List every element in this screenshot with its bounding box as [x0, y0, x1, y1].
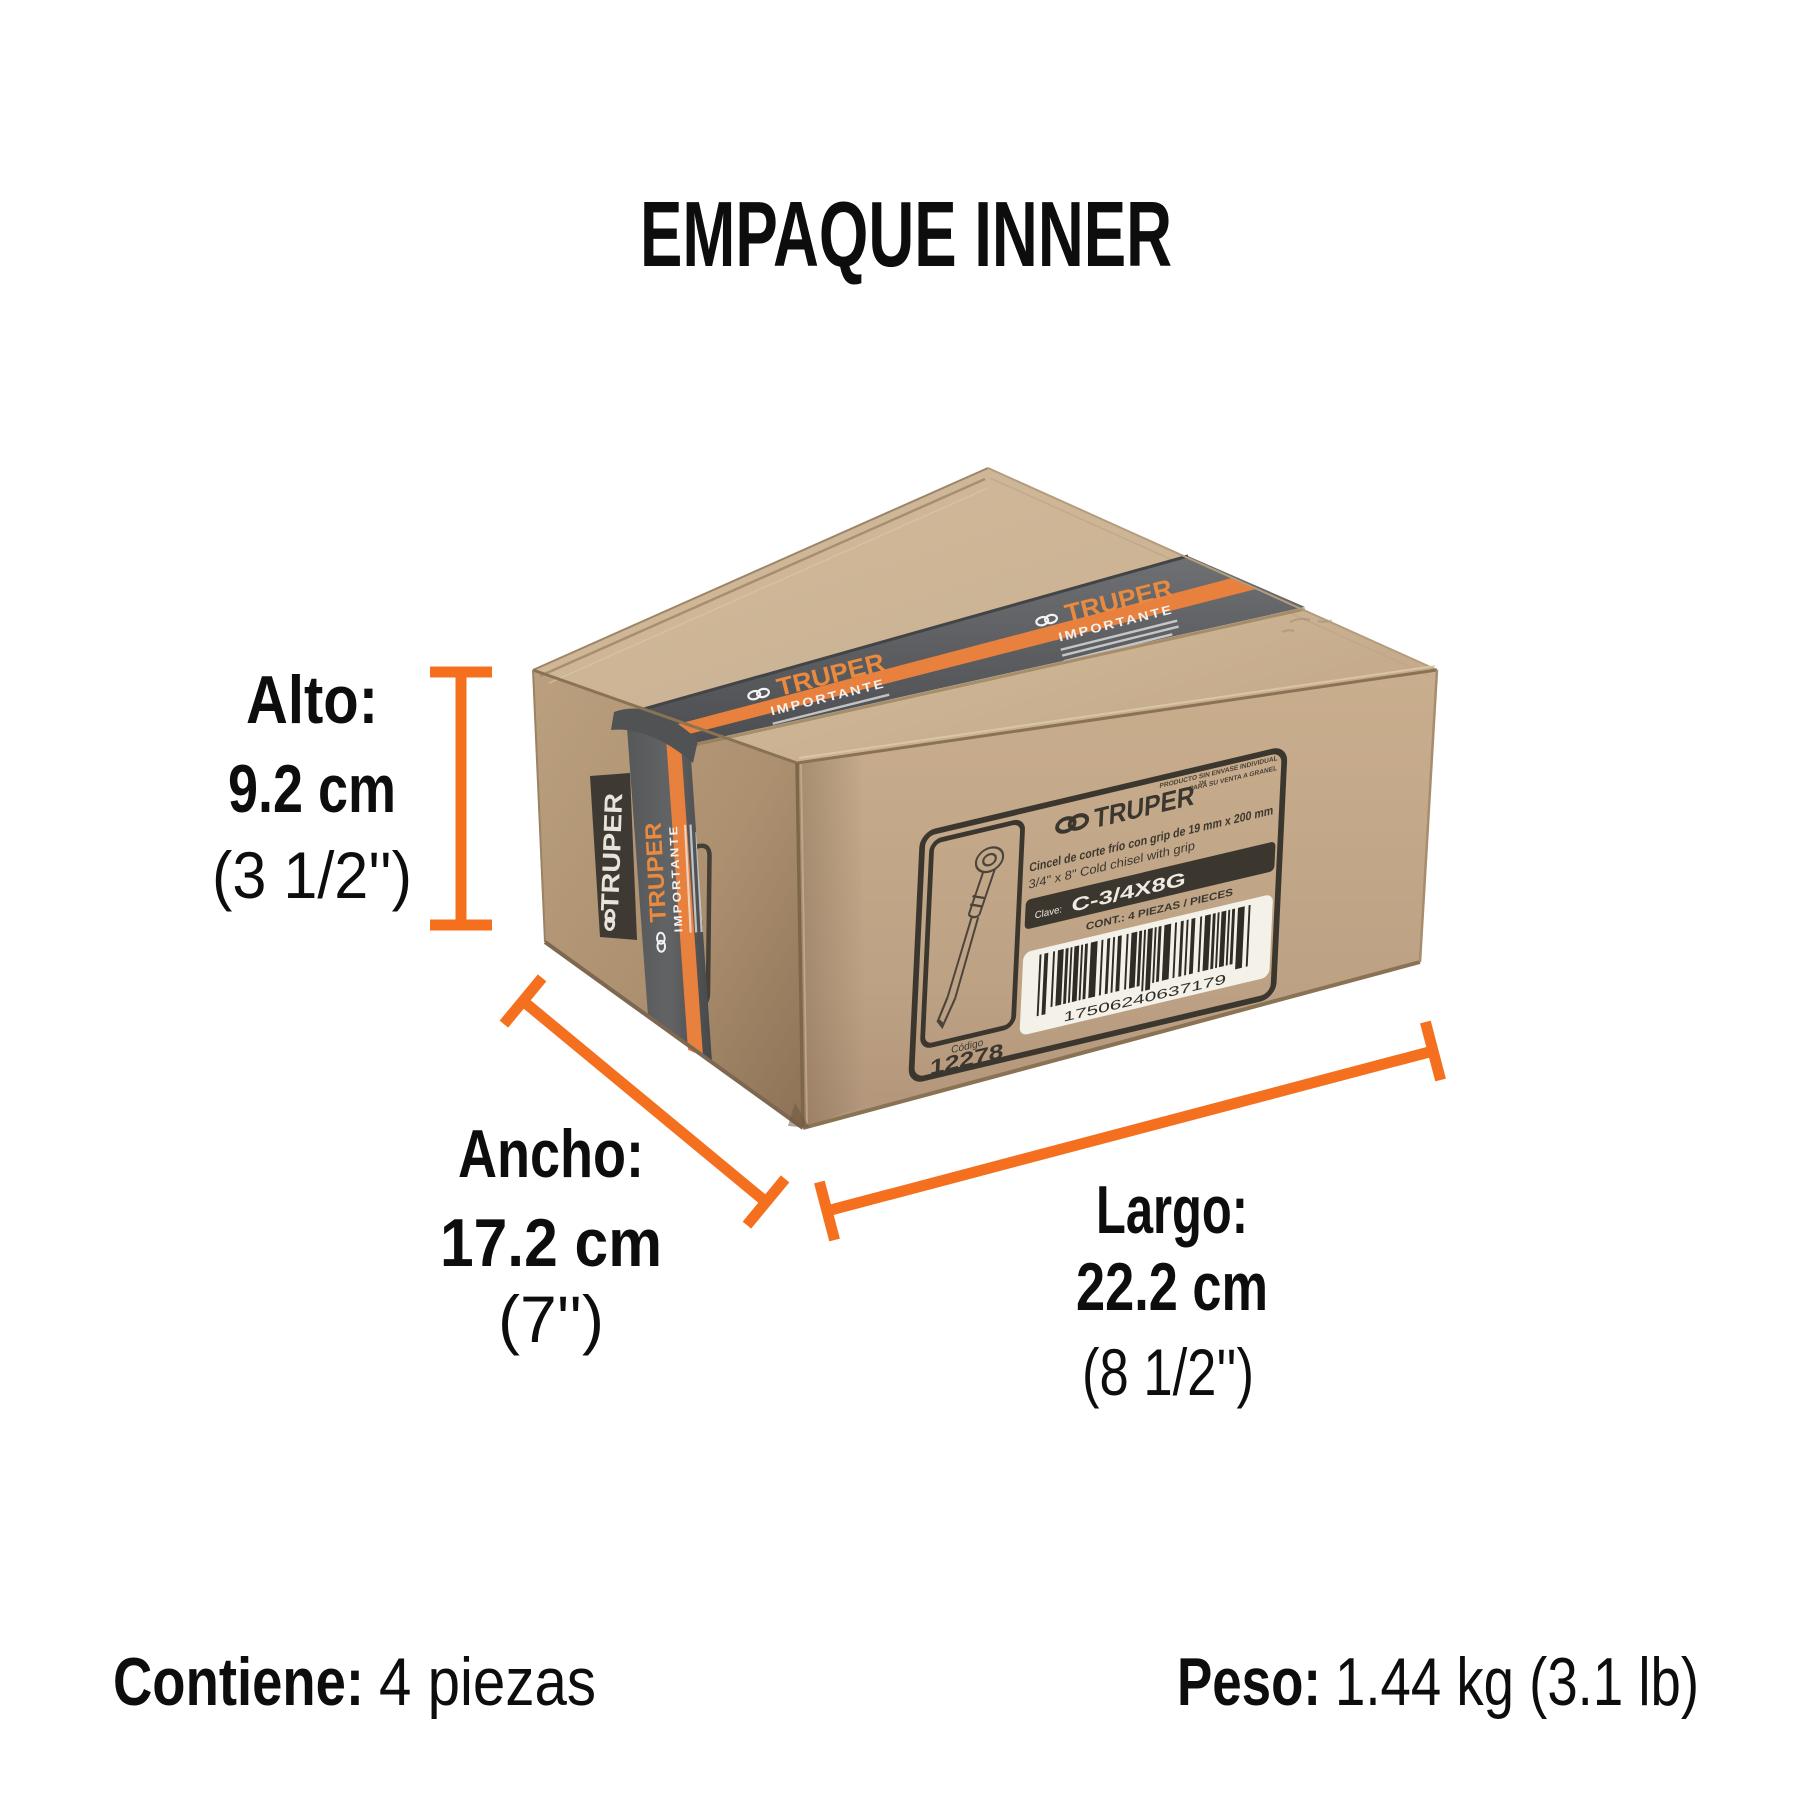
ancho-label: Ancho: [458, 1116, 644, 1192]
tape-brand-3: TRUPER [640, 821, 671, 923]
front-edge-shading [797, 752, 866, 1128]
largo-imperial: (8 1/2'') [1082, 1335, 1254, 1409]
largo-label: Largo: [1096, 1172, 1248, 1248]
product-packaging-figure: EMPAQUE INNER TRUPER [0, 0, 1800, 1800]
largo-metric: 22.2 cm [1076, 1249, 1268, 1325]
contains-label: Contiene: [113, 1644, 364, 1720]
page-title: EMPAQUE INNER [640, 182, 1172, 286]
alto-imperial: (3 1/2'') [212, 838, 412, 912]
weight-value: 1.44 kg (3.1 lb) [1335, 1644, 1699, 1720]
alto-label: Alto: [246, 662, 378, 738]
weight-label: Peso: [1177, 1644, 1321, 1720]
alto-metric: 9.2 cm [228, 751, 396, 827]
ancho-metric: 17.2 cm [440, 1205, 662, 1281]
ancho-imperial: (7'') [498, 1282, 604, 1356]
side-brand-text: TRUPER [596, 793, 628, 912]
side-brand-group: TRUPER [596, 793, 629, 930]
scene: EMPAQUE INNER TRUPER [0, 0, 1800, 1800]
contains-value: 4 piezas [379, 1644, 596, 1720]
